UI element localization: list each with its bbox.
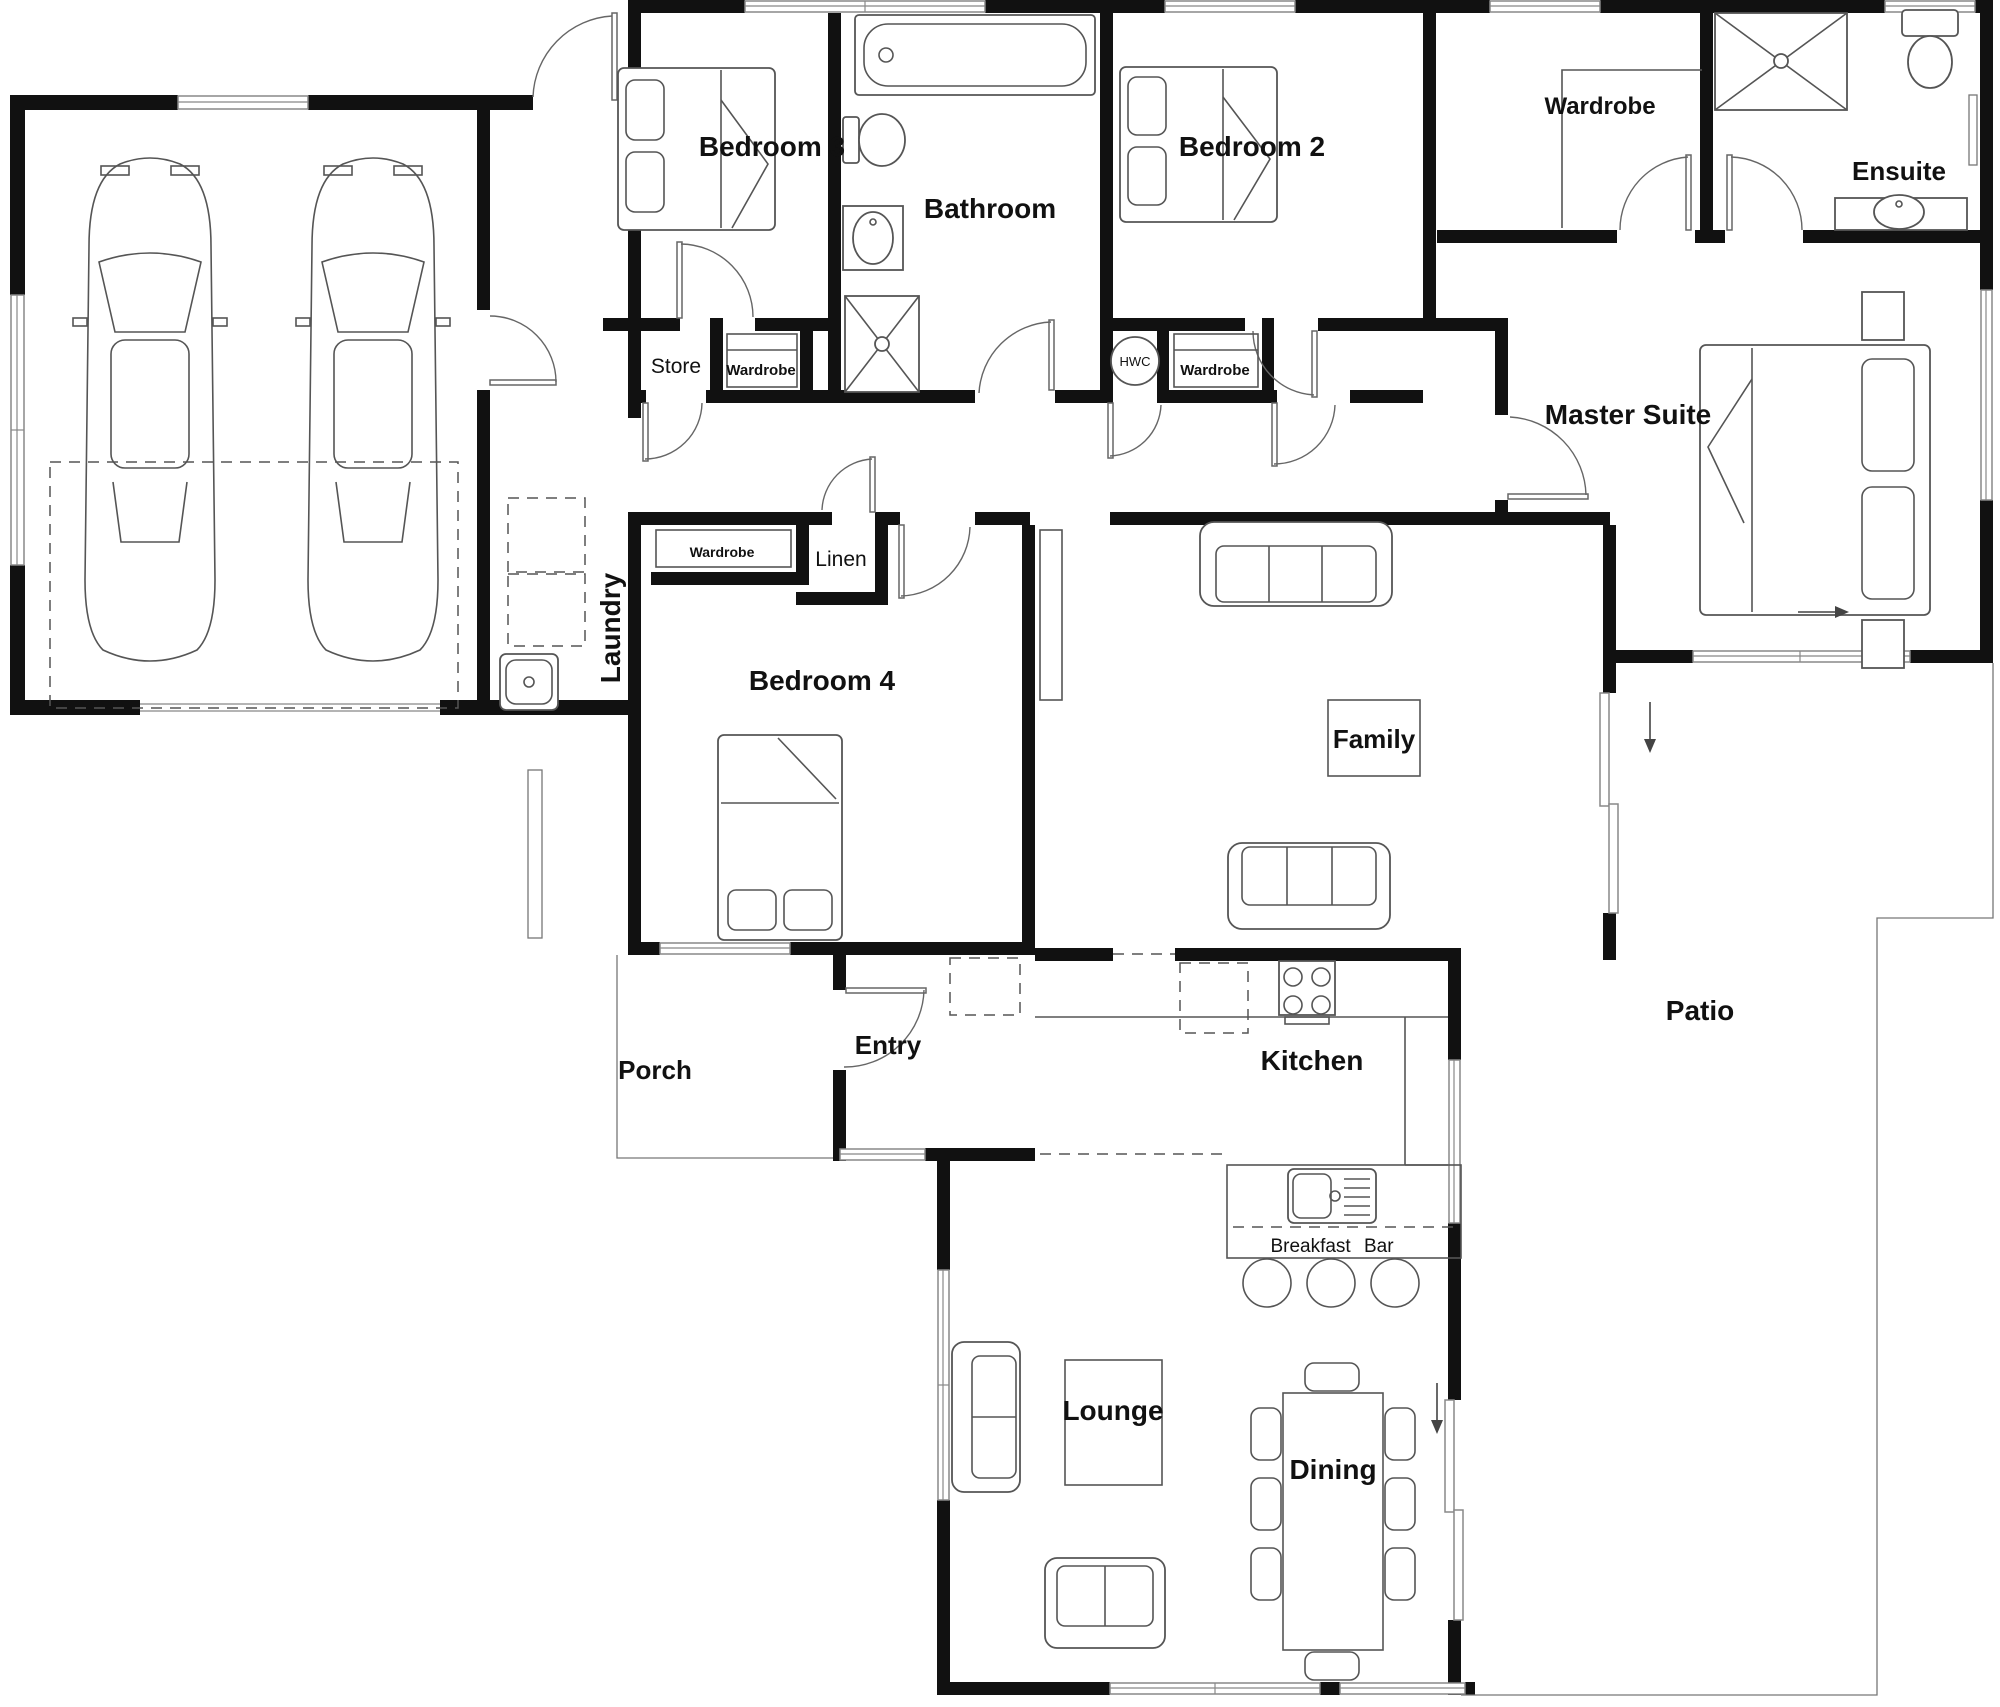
shower-icon (845, 296, 919, 392)
sliding-door (1445, 1400, 1463, 1620)
tv-unit (1040, 530, 1062, 700)
bedroom3-wardrobe-shelf (727, 334, 797, 387)
door (979, 320, 1054, 393)
entry-label: Entry (855, 1030, 922, 1060)
fridge-space (950, 958, 1020, 1015)
stool-icon (1371, 1259, 1419, 1307)
window (1110, 1683, 1320, 1694)
stool-icon (1307, 1259, 1355, 1307)
toilet-icon (1902, 10, 1958, 88)
kitchen-fixtures (950, 954, 1448, 1165)
dining-furniture (1251, 1363, 1415, 1680)
breakfast-bar-label: Breakfast Bar (1270, 1236, 1394, 1257)
door (677, 242, 753, 318)
bedroom3-label: Bedroom 3 (699, 131, 845, 162)
patio-label: Patio (1666, 995, 1734, 1026)
door (1620, 155, 1691, 230)
floor-plan: Bedroom 3 Bathroom Bedroom 2 Wardrobe En… (0, 0, 2000, 1707)
basin-icon (843, 206, 903, 270)
stool-icon (1243, 1259, 1291, 1307)
dining-table (1283, 1393, 1383, 1650)
sink-icon (1288, 1169, 1376, 1223)
sofa-icon (1045, 1558, 1165, 1648)
chair-icon (1305, 1652, 1359, 1680)
window (745, 1, 985, 12)
path-edge (528, 770, 542, 938)
sofa-icon (952, 1342, 1020, 1492)
chair-icon (1251, 1408, 1281, 1460)
door (490, 316, 556, 385)
sofa-icon (1228, 843, 1390, 929)
ensuite-fixtures (1715, 10, 1977, 230)
door (899, 525, 970, 598)
ensuite-label: Ensuite (1852, 156, 1946, 186)
laundry-fixtures (500, 498, 585, 710)
chair-icon (1251, 1548, 1281, 1600)
window (840, 1149, 925, 1160)
bedroom2-label: Bedroom 2 (1179, 131, 1325, 162)
bedroom2-wardrobe-shelf (1174, 334, 1258, 387)
shower-icon (1715, 13, 1847, 110)
bedroom2-wardrobe-label: Wardrobe (1180, 362, 1249, 379)
laundry-label: Laundry (595, 572, 626, 683)
window (938, 1270, 949, 1500)
master-suite-label: Master Suite (1545, 399, 1712, 430)
window (1340, 1683, 1465, 1694)
floor-plan-page: Bedroom 3 Bathroom Bedroom 2 Wardrobe En… (0, 0, 2000, 1707)
vanity-basin-icon (1835, 195, 1967, 230)
chair-icon (1385, 1548, 1415, 1600)
bedroom4-bed-icon (718, 735, 842, 940)
sliding-door (1600, 693, 1618, 913)
chair-icon (1251, 1478, 1281, 1530)
bedside-table (1862, 620, 1904, 668)
door (822, 457, 875, 512)
door (1108, 403, 1161, 458)
lounge-furniture (952, 1342, 1165, 1648)
cooktop-icon (1279, 961, 1335, 1024)
kitchen-label: Kitchen (1261, 1045, 1364, 1076)
window (1981, 290, 1992, 500)
hwc-label: HWC (1119, 354, 1150, 369)
bathroom-label: Bathroom (924, 193, 1056, 224)
bedroom3-wardrobe-label: Wardrobe (726, 362, 795, 379)
garage-dashed-apron (50, 462, 458, 708)
window (1490, 1, 1600, 12)
bedside-table (1862, 292, 1904, 340)
chair-icon (1385, 1478, 1415, 1530)
door (1272, 403, 1335, 466)
chair-icon (1305, 1363, 1359, 1391)
pantry-space (1180, 963, 1248, 1033)
window (1165, 1, 1295, 12)
family-label: Family (1333, 724, 1416, 754)
patio-boundary (1461, 663, 1993, 1695)
window (1449, 1060, 1460, 1223)
laundry-tub-icon (500, 654, 558, 710)
door (1727, 155, 1802, 230)
car-icon (73, 158, 227, 661)
store-label: Store (651, 355, 701, 378)
door (533, 13, 617, 100)
bathtub-icon (855, 15, 1095, 95)
window (660, 943, 790, 954)
dining-label: Dining (1289, 1454, 1376, 1485)
chair-icon (1385, 1408, 1415, 1460)
bedroom4-wardrobe-label: Wardrobe (690, 544, 755, 560)
bedroom4-label: Bedroom 4 (749, 665, 896, 696)
linen-label: Linen (815, 548, 866, 571)
toilet-icon (843, 114, 905, 166)
master-wardrobe-label: Wardrobe (1544, 93, 1655, 120)
window (178, 96, 308, 109)
master-bed-icon (1700, 345, 1930, 615)
car-icon (296, 158, 450, 661)
window (11, 295, 24, 565)
lounge-label: Lounge (1062, 1395, 1163, 1426)
sofa-icon (1200, 522, 1392, 606)
door (643, 403, 702, 461)
towel-rail (1969, 95, 1977, 165)
slide-direction-arrows (1431, 606, 1849, 1434)
porch-label: Porch (618, 1055, 692, 1085)
